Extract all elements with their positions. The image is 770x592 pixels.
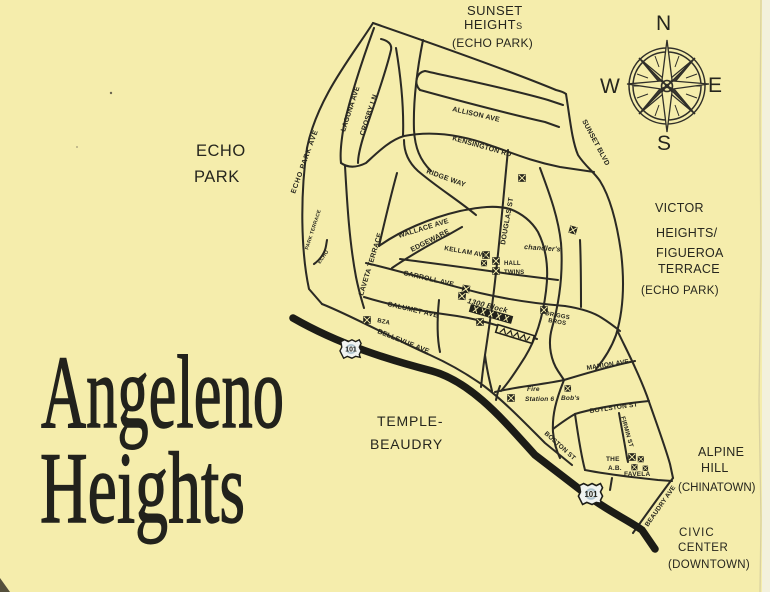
svg-text:TEMPLE-: TEMPLE-: [377, 413, 443, 429]
svg-text:TWINS: TWINS: [504, 270, 524, 276]
svg-text:A.B.: A.B.: [608, 465, 622, 472]
svg-text:HEIGHTS: HEIGHTS: [464, 17, 523, 32]
svg-text:ECHO: ECHO: [196, 142, 246, 160]
svg-text:Station 6: Station 6: [525, 396, 554, 403]
svg-text:FIGUEROA: FIGUEROA: [656, 246, 724, 260]
svg-text:S: S: [657, 132, 671, 155]
svg-text:(ECHO PARK): (ECHO PARK): [452, 36, 533, 50]
svg-text:BEAUDRY: BEAUDRY: [370, 436, 443, 452]
svg-text:THE: THE: [606, 456, 620, 463]
svg-text:CIVIC: CIVIC: [679, 527, 715, 539]
svg-text:VICTOR: VICTOR: [655, 201, 704, 215]
svg-text:HILL: HILL: [701, 461, 729, 475]
svg-text:(CHINATOWN): (CHINATOWN): [678, 482, 756, 494]
svg-text:E: E: [708, 74, 722, 97]
svg-text:CENTER: CENTER: [678, 542, 728, 554]
svg-text:HALL: HALL: [504, 261, 521, 267]
svg-text:PARK: PARK: [194, 168, 240, 186]
svg-text:TERRACE: TERRACE: [658, 262, 720, 276]
svg-text:SUNSET: SUNSET: [467, 3, 523, 18]
svg-text:Fire: Fire: [527, 386, 540, 393]
svg-text:(DOWNTOWN): (DOWNTOWN): [668, 559, 750, 571]
svg-text:(ECHO PARK): (ECHO PARK): [641, 285, 719, 297]
svg-text:Heights: Heights: [40, 432, 245, 545]
svg-text:W: W: [600, 75, 620, 98]
svg-text:FAVELA: FAVELA: [624, 471, 650, 478]
svg-text:ALPINE: ALPINE: [698, 445, 744, 459]
svg-text:N: N: [656, 12, 671, 35]
svg-text:HEIGHTS/: HEIGHTS/: [656, 226, 718, 240]
svg-text:Bob's: Bob's: [561, 395, 580, 402]
svg-text:101: 101: [345, 347, 357, 354]
svg-text:101: 101: [584, 490, 598, 499]
